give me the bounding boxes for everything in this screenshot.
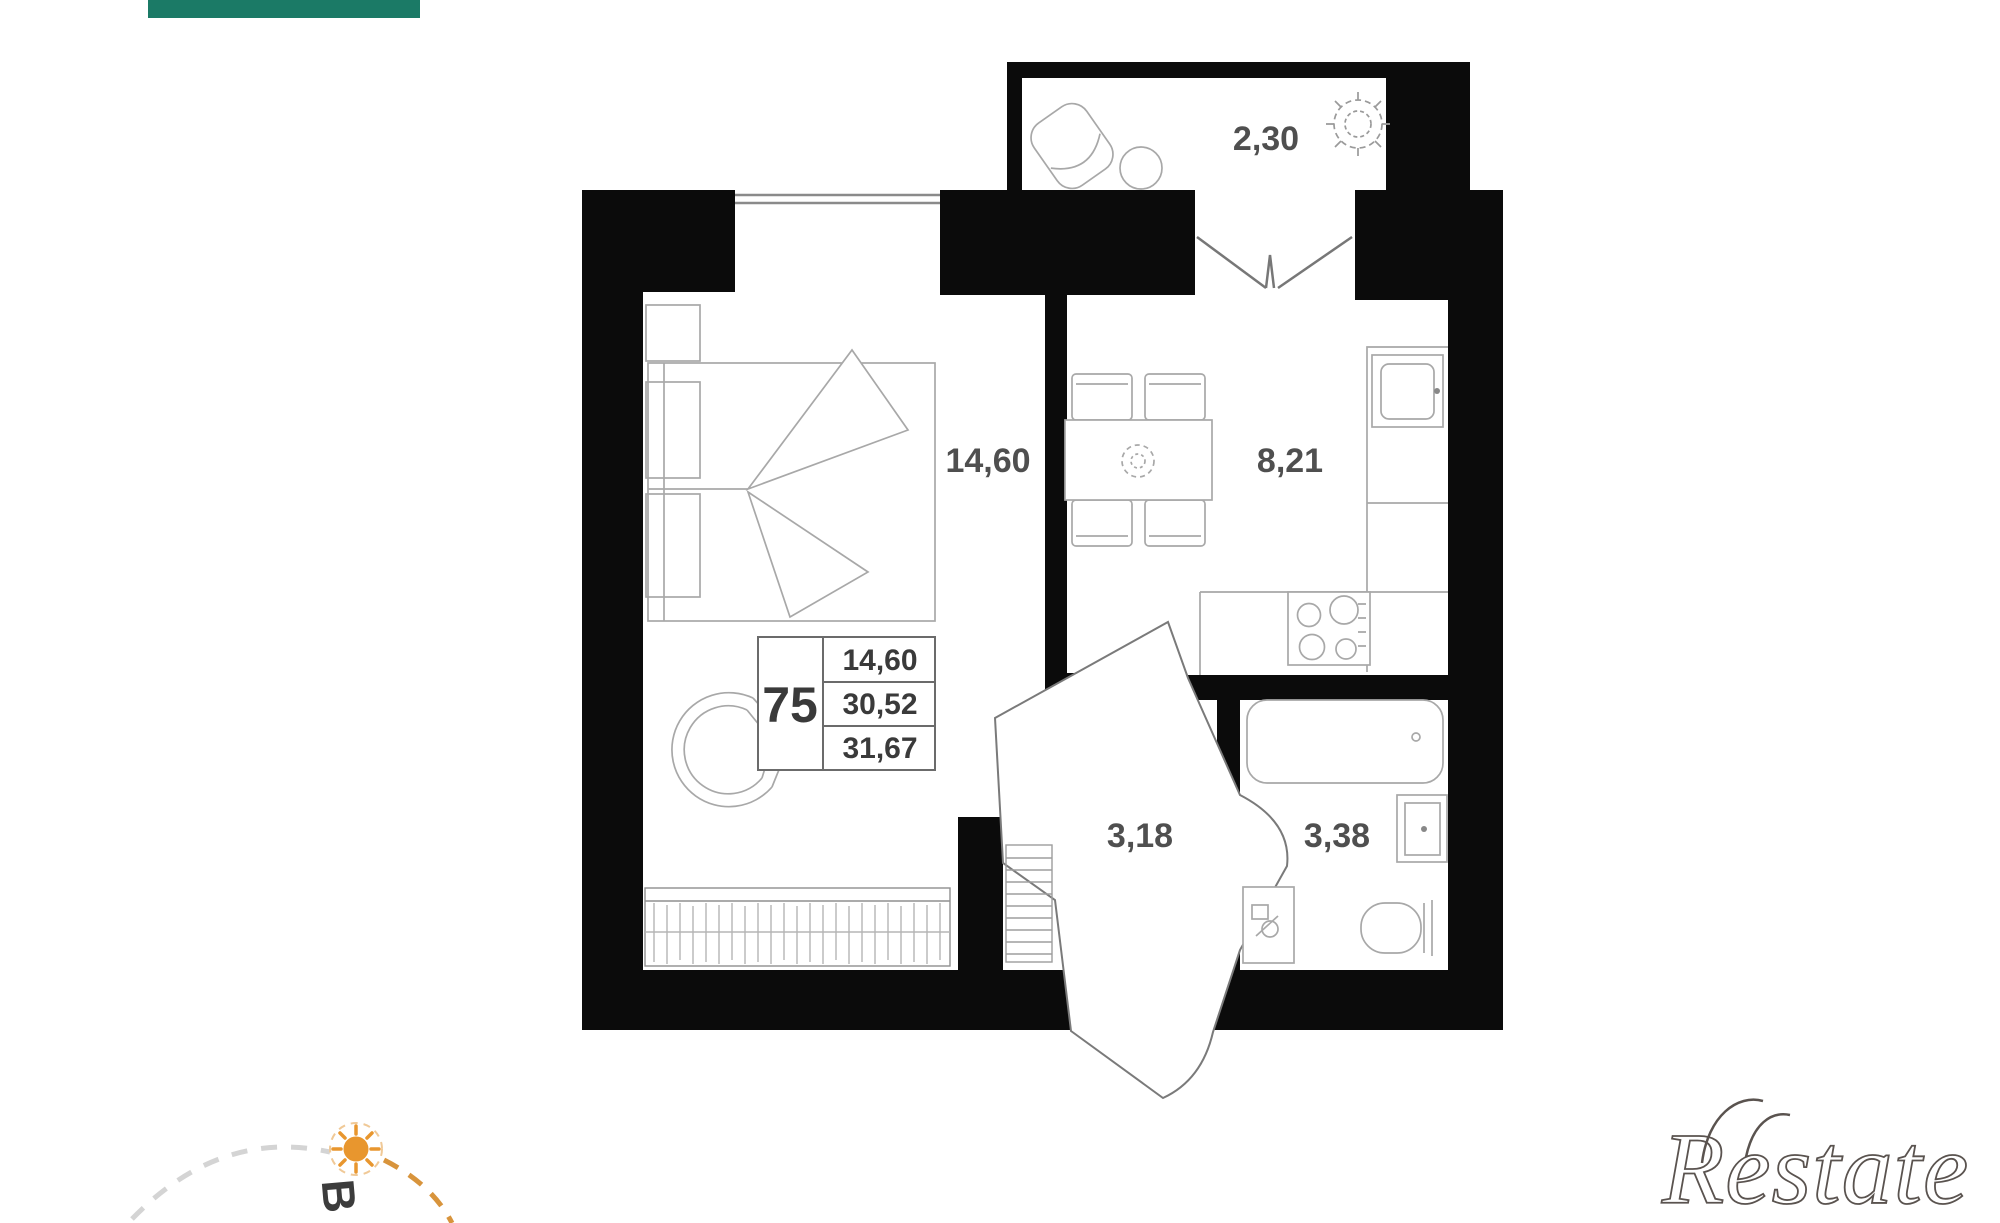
balcony-door (1197, 237, 1352, 288)
hanging-clothes (654, 903, 940, 964)
bathtub-icon (1247, 700, 1443, 783)
washing-machine-icon (1243, 887, 1294, 963)
room-area-label-kitchen: 8,21 (1257, 442, 1323, 480)
compass-direction-label: В (312, 1177, 367, 1215)
plant-icon (1326, 92, 1390, 156)
floorplan-page: 2,30 14,60 8,21 3,18 3,38 75 14,60 30,52… (0, 0, 2000, 1223)
watermark-text: Restate (1661, 1113, 1969, 1223)
accent-bar (148, 0, 420, 18)
stove-icon (1288, 592, 1370, 665)
apartment-number: 75 (762, 677, 818, 733)
sun-icon (330, 1123, 382, 1175)
room-area-label-bedroom: 14,60 (945, 442, 1030, 480)
area-value-no-balcony: 30,52 (842, 688, 917, 721)
bed (648, 350, 935, 621)
bathroom-sink-icon (1397, 795, 1447, 862)
room-area-label-hallway: 3,18 (1107, 817, 1173, 855)
room-area-label-bathroom: 3,38 (1304, 817, 1370, 855)
apartment-info-table: 75 14,60 30,52 31,67 (758, 637, 935, 770)
floor-plan-canvas: 2,30 14,60 8,21 3,18 3,38 75 14,60 30,52… (0, 0, 2000, 1223)
clothes-rack (645, 888, 950, 966)
kitchen-sink-icon (1372, 355, 1443, 427)
area-value-total: 31,67 (842, 732, 917, 765)
toilet-icon (1361, 900, 1432, 956)
balcony-stool (1120, 147, 1162, 189)
dining-table (1065, 420, 1212, 500)
room-area-label-balcony: 2,30 (1233, 120, 1299, 158)
compass: В (132, 1123, 452, 1223)
balcony-chair (1024, 97, 1120, 196)
watermark-logo: Restate (1661, 1100, 1969, 1223)
sun-path-arc-gray (132, 1147, 330, 1219)
bedroom-window (735, 195, 940, 203)
area-value-living: 14,60 (842, 644, 917, 677)
sun-path-arc-orange (384, 1160, 452, 1223)
